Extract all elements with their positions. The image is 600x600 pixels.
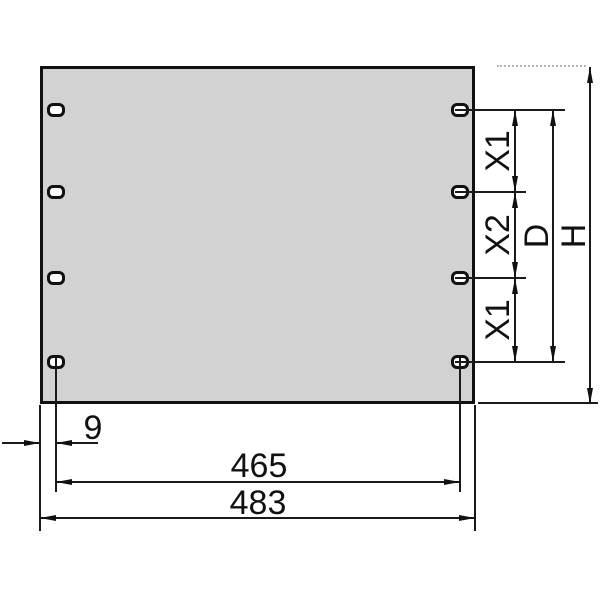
- arrowhead-up-icon: [512, 192, 518, 208]
- mounting-slot-left-3: [47, 271, 65, 285]
- arrowhead-right-icon: [24, 440, 40, 446]
- arrowhead-down-icon: [587, 388, 593, 404]
- centerline-bottom-left-slot: [55, 358, 57, 492]
- arrowhead-up-icon: [512, 278, 518, 294]
- dim-label-x1-top: X1: [481, 130, 515, 172]
- dim-label-d: D: [520, 224, 554, 249]
- dim-label-483: 483: [230, 486, 287, 520]
- rack-panel-face: [40, 66, 475, 404]
- arrowhead-down-icon: [512, 346, 518, 362]
- extension-line-right-edge: [474, 405, 476, 531]
- mounting-slot-left-1: [47, 103, 65, 117]
- extension-line-top-dotted: [497, 65, 586, 67]
- arrowhead-down-icon: [550, 346, 556, 362]
- arrowhead-up-icon: [587, 67, 593, 83]
- arrowhead-right-icon: [459, 515, 475, 521]
- extension-line-slot1: [455, 109, 565, 111]
- extension-line-bottom-h: [478, 402, 598, 404]
- arrowhead-left-icon: [56, 479, 72, 485]
- arrowhead-right-icon: [444, 479, 460, 485]
- arrowhead-down-icon: [512, 176, 518, 192]
- arrowhead-left-icon: [56, 440, 72, 446]
- dim-label-h: H: [557, 224, 591, 249]
- dim-label-x1-bottom: X1: [481, 299, 515, 341]
- arrowhead-down-icon: [512, 262, 518, 278]
- arrowhead-left-icon: [40, 515, 56, 521]
- centerline-bottom-right-slot: [459, 358, 461, 492]
- extension-line-slot4: [455, 361, 565, 363]
- dim-label-x2: X2: [481, 214, 515, 256]
- dim-label-465: 465: [231, 449, 288, 483]
- dim-label-9: 9: [84, 411, 103, 445]
- mounting-slot-left-2: [47, 185, 65, 199]
- arrowhead-up-icon: [512, 110, 518, 126]
- extension-line-left-edge: [39, 405, 41, 531]
- arrowhead-up-icon: [550, 110, 556, 126]
- technical-drawing-canvas: 9 465 483 X1 X2 X1 D H: [0, 0, 600, 600]
